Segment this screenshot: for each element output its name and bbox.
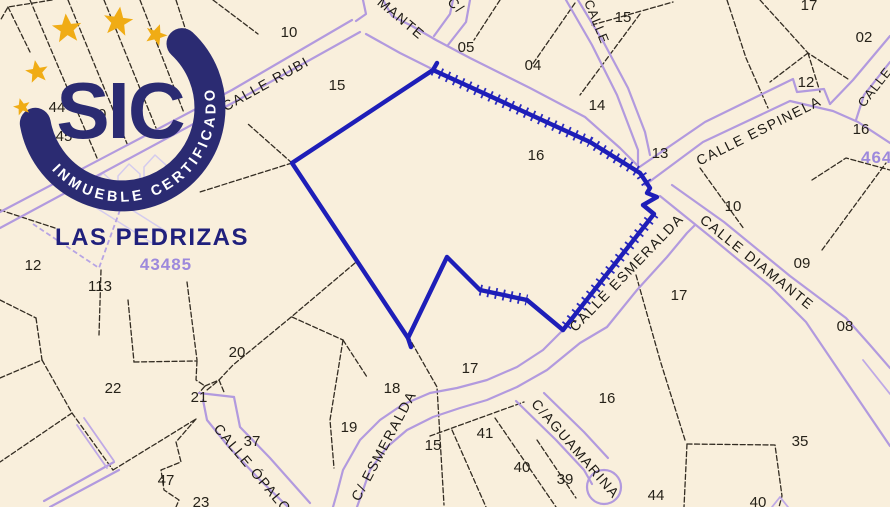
street-label-calle-top: CALLE [581, 0, 612, 46]
parcel-number: 13 [652, 145, 669, 162]
parcel-number: 17 [801, 0, 818, 14]
star-icon [24, 58, 50, 83]
area-label: LAS PEDRIZAS [55, 224, 249, 251]
parcel-number: 44 [648, 487, 665, 504]
parcel-number: 21 [191, 389, 208, 406]
parcel-number: 12 [25, 257, 42, 274]
parcel-number: 20 [229, 344, 246, 361]
parcel-number: 19 [341, 419, 358, 436]
parcel-number: 39 [557, 471, 574, 488]
parcel-number: 16 [853, 121, 870, 138]
parcel-number: 09 [794, 255, 811, 272]
certification-badge: SIC INMUEBLE CERTIFICADO [11, 5, 219, 206]
parcel-number: 37 [244, 433, 261, 450]
map-canvas[interactable]: CALLE RUBI MANTE C/ CALLE CALLE ESPINELA… [0, 0, 890, 507]
street-label-c-esmeralda: C/ ESMERALDA [348, 388, 420, 503]
parcel-number: 17 [462, 360, 479, 377]
parcel-number: 08 [837, 318, 854, 335]
star-icon [51, 12, 83, 43]
street-label-calle-espinela: CALLE ESPINELA [694, 93, 824, 169]
street-label-c-slash: C/ [445, 0, 468, 17]
parcel-number: 10 [725, 198, 742, 215]
parcel-number: 16 [528, 147, 545, 164]
parcel-number: 15 [425, 437, 442, 454]
parcel-number: 12 [798, 74, 815, 91]
parcel-number: 113 [88, 278, 112, 295]
street-label-calle-rubi: CALLE RUBI [219, 53, 311, 114]
parcel-number: 18 [384, 380, 401, 397]
parcel-number: 10 [281, 24, 298, 41]
cadastral-ref: 43485 [140, 255, 192, 274]
parcel-number: 15 [615, 9, 632, 26]
parcel-number: 40 [750, 494, 767, 507]
parcel-number: 47 [158, 472, 175, 489]
parcel-number: 41 [477, 425, 494, 442]
parcel-number: 40 [514, 459, 531, 476]
parcel-number: 23 [193, 494, 210, 507]
parcel-number: 17 [671, 287, 688, 304]
parcel-number: 02 [856, 29, 873, 46]
parcel-number: 14 [589, 97, 606, 114]
parcel-number: 15 [329, 77, 346, 94]
street-label-calle-esmeralda: CALLE ESMERALDA [566, 210, 687, 334]
cadastral-ref-partial: 464 [861, 148, 890, 167]
parcel-number: 35 [792, 433, 809, 450]
badge-acronym: SIC [56, 66, 184, 155]
street-label-mante: MANTE [374, 0, 428, 42]
parcel-number: 05 [458, 39, 475, 56]
star-icon [102, 5, 135, 37]
parcel-number: 16 [599, 390, 616, 407]
street-labels: CALLE RUBI MANTE C/ CALLE CALLE ESPINELA… [211, 0, 890, 507]
parcel-number: 22 [105, 380, 122, 397]
parcel-number: 04 [525, 57, 542, 74]
